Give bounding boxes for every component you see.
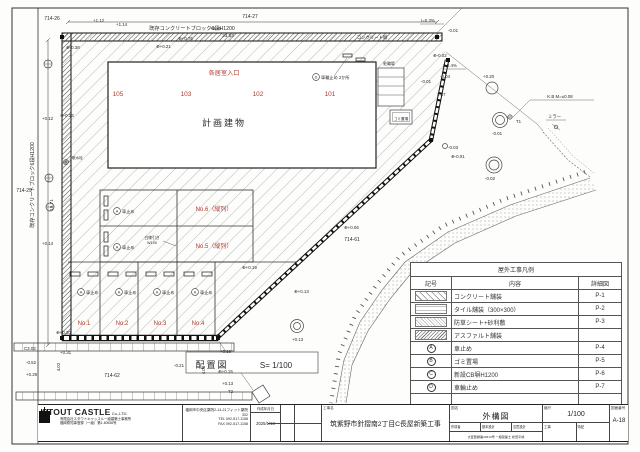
license-text: 大臣登録第20313号 一級建築士 松田平成 xyxy=(450,432,542,439)
spot-elevation: -0.01 xyxy=(492,131,503,136)
drawing-number-cell: 図面番号 A-18 xyxy=(610,405,628,441)
stall-label: No.3 xyxy=(154,321,167,327)
staff-cell: 意匠設計 xyxy=(512,423,542,431)
legend-row: C 新設CB塀H1200 P-6 xyxy=(411,368,622,381)
spot-elevation: +0.13 xyxy=(292,337,304,342)
spot-elevation: -0.01 xyxy=(421,79,432,84)
spot-elevation: ⊕-0.13 xyxy=(60,113,74,118)
spot-elevation: -0.03 xyxy=(448,145,459,150)
sym-a: A xyxy=(116,246,119,250)
white-line-note: 白線引き xyxy=(144,235,159,240)
dim-label: 19.71 xyxy=(49,199,54,211)
project-name: 筑紫野市針摺南2丁目C長屋新築工事 xyxy=(322,418,449,428)
project-cell: 工事名 筑紫野市針摺南2丁目C長屋新築工事 xyxy=(322,405,450,441)
spot-elevation: +0.13 xyxy=(222,381,234,386)
parcel-label: 714-62 xyxy=(104,373,120,379)
point-label: C3.03 xyxy=(24,346,36,351)
stall-label: No.1 xyxy=(78,321,91,327)
title-block: STOUT CASTLE Co.,LTD. 有限会社スタウトキャッスル一級建築士… xyxy=(38,404,628,442)
legend-label: コンクリート舗装 xyxy=(452,290,579,303)
legend-row: D 車輪止め P-7 xyxy=(411,381,622,394)
sprinkler-label: 散水栓 xyxy=(72,155,83,160)
spot-elevation: ⊕-0.02 xyxy=(433,53,447,58)
spot-elevation: -0.01 xyxy=(448,28,459,33)
sym-a: A xyxy=(194,291,197,295)
tree-circle xyxy=(486,82,498,94)
legend-title: 屋外工事凡例 xyxy=(411,263,622,277)
spot-elevation: ⊕+0.21 xyxy=(156,44,171,49)
plan-title: 配置図 xyxy=(195,360,228,370)
hatch-tile-swatch xyxy=(415,304,447,314)
legend-detail: P-3 xyxy=(579,316,622,329)
spot-elevation: -0.52 xyxy=(26,360,37,365)
dim-label: 23.53 xyxy=(222,33,234,38)
parcel-label: 714-61 xyxy=(344,237,360,243)
bike-label: 駐輪場 xyxy=(383,61,395,66)
legend-label: 防草シート+砂利敷 xyxy=(452,316,579,329)
sym-d: D xyxy=(315,76,318,80)
plan-scale: S= 1/100 xyxy=(260,361,293,370)
legend-row: タイル舗装（300×300） P-2 xyxy=(411,303,622,316)
castle-logo-icon xyxy=(38,405,51,423)
legend-row: A 車止め P-4 xyxy=(411,342,622,355)
project-label: 工事名 xyxy=(323,406,334,411)
sym-a: A xyxy=(118,291,121,295)
company-fax: FAX 092-517-1158 xyxy=(183,422,250,427)
legend-detail: P-7 xyxy=(579,381,622,394)
circle-c-icon: C xyxy=(427,370,436,379)
legend-row: アスファルト舗装 xyxy=(411,329,622,342)
sym-a: A xyxy=(156,291,159,295)
white-line-note: W100 xyxy=(147,241,157,245)
spot-elevation: -0.04 xyxy=(440,74,451,79)
wall-label-top: 既存コンクリートブロック6段H1200 xyxy=(149,24,235,32)
spot-elevation: -0.21 xyxy=(174,363,185,368)
sym-a: A xyxy=(116,210,119,214)
staff-row: 作成者 基本設計 意匠設計 xyxy=(450,423,542,432)
wheel-stop-note: 車輪止め 2か所 xyxy=(321,74,350,81)
stall-label: No.6（縦列） xyxy=(196,205,233,213)
number-label: 図面番号 xyxy=(611,406,625,411)
legend-detail: P-5 xyxy=(579,355,622,368)
point-label: T2 xyxy=(228,389,234,394)
car-stop-label: 車止め xyxy=(122,208,135,215)
legend-detail xyxy=(579,329,622,342)
sym-a: A xyxy=(80,291,83,295)
car-stop-label: 車止め xyxy=(200,289,213,296)
company-address: 福岡市中央区薬院2-14-21フィット薬院302 xyxy=(183,408,250,417)
drawing-name-cell: 図名 外構図 作成者 基本設計 意匠設計 大臣登録第20313号 一級建築士 松… xyxy=(450,405,543,441)
hatch-concrete-swatch xyxy=(415,291,447,301)
unit-number: 102 xyxy=(253,91,264,98)
trash-label: ゴミ置場 xyxy=(394,116,409,121)
unit-number: 105 xyxy=(113,91,124,98)
legend-label: 新設CB塀H1200 xyxy=(452,368,579,381)
spot-elevation: ⊕+0.19 xyxy=(242,265,257,270)
circle-d-icon: D xyxy=(427,383,436,392)
stall-label: No.4 xyxy=(192,321,205,327)
spot-elevation: +1.14 xyxy=(116,22,128,27)
empty-cell-divider xyxy=(268,423,322,424)
unit-number: 103 xyxy=(181,91,192,98)
unit-number: 101 xyxy=(325,91,336,98)
spot-elevation: +0.31 xyxy=(60,350,72,355)
staff-cell: 特記 xyxy=(577,423,610,441)
concrete-wall-label: コンクリート塀 xyxy=(357,34,388,41)
legend-label: アスファルト舗装 xyxy=(452,329,579,342)
point-label: T1 xyxy=(516,119,522,124)
slope-label: I=0.3% xyxy=(421,18,435,23)
address-cell: 福岡市中央区薬院2-14-21フィット薬院302 TEL 092-517-115… xyxy=(183,405,251,441)
dim-label: 4.02 xyxy=(56,362,61,371)
legend-detail: P-4 xyxy=(579,342,622,355)
manhole xyxy=(493,113,508,128)
spot-elevation: ⊕+0.06 xyxy=(344,225,359,230)
hatch-asphalt-swatch xyxy=(415,330,447,340)
mirror-label: ミラー xyxy=(548,114,561,120)
stall-label: No.5（縦列） xyxy=(196,242,233,250)
company-suffix: Co.,LTD. xyxy=(112,411,128,416)
car-stop-label: 車止め xyxy=(86,289,99,296)
spot-elevation: -0.02 xyxy=(485,176,496,181)
manhole xyxy=(486,157,502,173)
legend-row: 防草シート+砂利敷 P-3 xyxy=(411,316,622,329)
legend-detail: P-2 xyxy=(579,303,622,316)
spot-elevation: +1.12 xyxy=(93,18,105,23)
scale-value: 1/100 xyxy=(543,411,609,418)
legend-header: 記号 xyxy=(411,277,452,290)
drawing-label: 図名 xyxy=(451,406,458,411)
bike-rack xyxy=(378,68,404,106)
drawing-sheet: 714-26 714-27 714-29 714-62 714-61 23.53… xyxy=(0,0,640,452)
hatch-weedsheet-swatch xyxy=(415,317,447,327)
car-stop-label: 車止め xyxy=(124,289,137,296)
spot-elevation: ⊕-0.01 xyxy=(451,154,465,159)
spot-elevation: ⊕+0.30 xyxy=(56,330,71,335)
legend-label: 車輪止め xyxy=(452,381,579,394)
benchmark-label: K.B M=±0.08 xyxy=(547,94,573,99)
building-label: 計画建物 xyxy=(202,117,246,128)
spot-elevation: ⊕-0.38 xyxy=(66,45,80,50)
company-cell: STOUT CASTLE Co.,LTD. 有限会社スタウトキャッスル一級建築士… xyxy=(38,405,183,441)
staff-cell: 作成者 xyxy=(450,423,481,431)
circle-a-icon: A xyxy=(427,344,436,353)
spot-elevation: +0.29 xyxy=(26,372,38,377)
drawing-number: A-18 xyxy=(610,418,628,424)
spot-elevation: +0.20 xyxy=(483,74,495,79)
stall-label: No.2 xyxy=(116,321,129,327)
slope-label: I=0.4% xyxy=(443,63,457,68)
scale-cell: 縮尺 1/100 工事 特記 xyxy=(543,405,610,441)
spot-elevation: +0.14 xyxy=(42,241,54,246)
legend-label: タイル舗装（300×300） xyxy=(452,303,579,316)
company-name: STOUT CASTLE xyxy=(42,407,111,417)
entrance-label: 各居室入口 xyxy=(209,69,240,77)
car-stop-label: 車止め xyxy=(162,289,175,296)
circle-b-icon: B xyxy=(427,357,436,366)
drawing-name: 外構図 xyxy=(450,411,542,422)
legend-detail: P-1 xyxy=(579,290,622,303)
manhole xyxy=(291,320,304,333)
legend-detail: P-6 xyxy=(579,368,622,381)
spot-elevation: +0.16 xyxy=(220,349,232,354)
staff-cell: 工事 xyxy=(543,423,577,441)
legend-row: B ゴミ置場 P-5 xyxy=(411,355,622,368)
parcel-label: 714-26 xyxy=(44,16,60,22)
car-stop-label: 車止め xyxy=(122,244,135,251)
spot-elevation: +0.12 xyxy=(42,116,54,121)
legend-header: 詳細図 xyxy=(579,277,622,290)
company-sub2: 福岡県知事登録（一級）第1-60536号 xyxy=(38,421,182,425)
scale-label: 縮尺 xyxy=(544,406,551,411)
parcel-label: 714-27 xyxy=(242,14,258,20)
legend-table: 屋外工事凡例 記号 内容 詳細図 コンクリート舗装 P-1 タイル舗装（300×… xyxy=(410,262,622,420)
building-outline xyxy=(108,62,412,168)
staff-cell: 基本設計 xyxy=(481,423,512,431)
spot-elevation: ⊕+0.75 xyxy=(178,36,193,41)
wall-label-left: 既存コンクリートブロック6段H1200 xyxy=(28,142,36,228)
dim-label: 2.67 xyxy=(437,92,446,97)
spot-elevation: ⊕+0.13 xyxy=(294,289,309,294)
legend-label: ゴミ置場 xyxy=(452,355,579,368)
legend-row: コンクリート舗装 P-1 xyxy=(411,290,622,303)
legend-header: 内容 xyxy=(452,277,579,290)
driveway-wedge xyxy=(252,385,270,403)
legend-label: 車止め xyxy=(452,342,579,355)
